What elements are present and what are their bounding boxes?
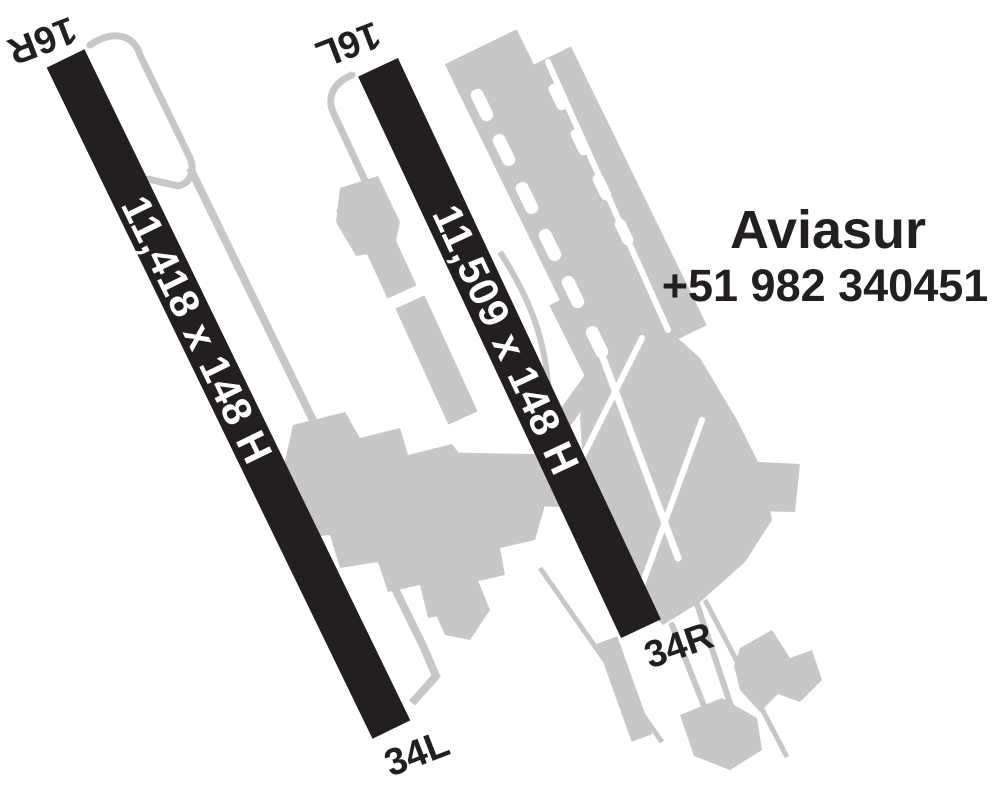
- runway-left-dimensions: 11,418 x 148 H: [112, 189, 281, 472]
- turnaround-pad: [680, 698, 762, 770]
- runway-end-label-34l: 34L: [379, 723, 455, 786]
- advertiser-phone: +51 982 340451: [662, 260, 989, 311]
- runway-end-label-34r: 34R: [639, 615, 719, 677]
- runway-end-label-16l: 16L: [310, 13, 386, 76]
- stepped-apron: [734, 630, 822, 712]
- airport-diagram: 11,418 x 148 H 11,509 x 148 H 16R 16L 34…: [0, 0, 1000, 794]
- advertiser-name: Aviasur: [730, 200, 926, 260]
- airport-diagram-page: 11,418 x 148 H 11,509 x 148 H 16R 16L 34…: [0, 0, 1000, 794]
- taxiway-segment: [410, 302, 463, 418]
- advertiser-annotation: Aviasur +51 982 340451: [662, 200, 989, 311]
